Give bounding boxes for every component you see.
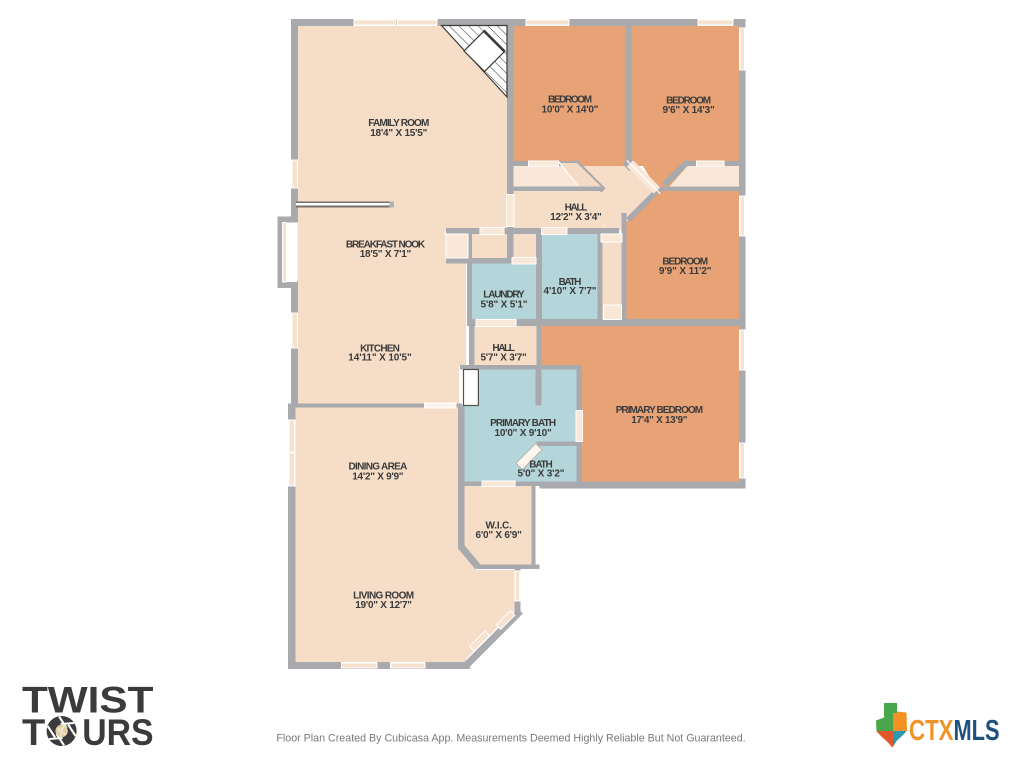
- svg-text:5'8" X 5'1": 5'8" X 5'1": [481, 300, 528, 311]
- svg-text:URS: URS: [82, 712, 153, 753]
- svg-text:10'0" X 14'0": 10'0" X 14'0": [542, 104, 599, 115]
- svg-text:Floor Plan Created By Cubicasa: Floor Plan Created By Cubicasa App. Meas…: [276, 733, 745, 745]
- svg-text:18'4" X 15'5": 18'4" X 15'5": [370, 128, 427, 139]
- svg-text:14'2" X 9'9": 14'2" X 9'9": [352, 471, 404, 482]
- svg-text:5'0" X 3'2": 5'0" X 3'2": [518, 469, 565, 480]
- svg-text:9'6" X 14'3": 9'6" X 14'3": [662, 105, 715, 116]
- svg-text:14'11" X 10'5": 14'11" X 10'5": [348, 353, 412, 364]
- svg-text:18'5" X 7'1": 18'5" X 7'1": [360, 249, 412, 260]
- svg-text:10'0" X 9'10": 10'0" X 9'10": [495, 428, 552, 439]
- svg-text:CTX: CTX: [909, 715, 954, 747]
- svg-text:17'4" X 13'9": 17'4" X 13'9": [631, 415, 688, 426]
- svg-text:5'7" X 3'7": 5'7" X 3'7": [480, 353, 527, 364]
- svg-text:19'0" X 12'7": 19'0" X 12'7": [355, 600, 412, 611]
- svg-text:9'9" X 11'2": 9'9" X 11'2": [659, 266, 712, 277]
- svg-text:6'0" X 6'9": 6'0" X 6'9": [476, 530, 523, 541]
- svg-text:MLS: MLS: [954, 715, 1000, 747]
- svg-text:12'2" X 3'4": 12'2" X 3'4": [550, 212, 602, 223]
- svg-text:T: T: [22, 712, 46, 753]
- svg-text:4'10" X 7'7": 4'10" X 7'7": [543, 286, 596, 297]
